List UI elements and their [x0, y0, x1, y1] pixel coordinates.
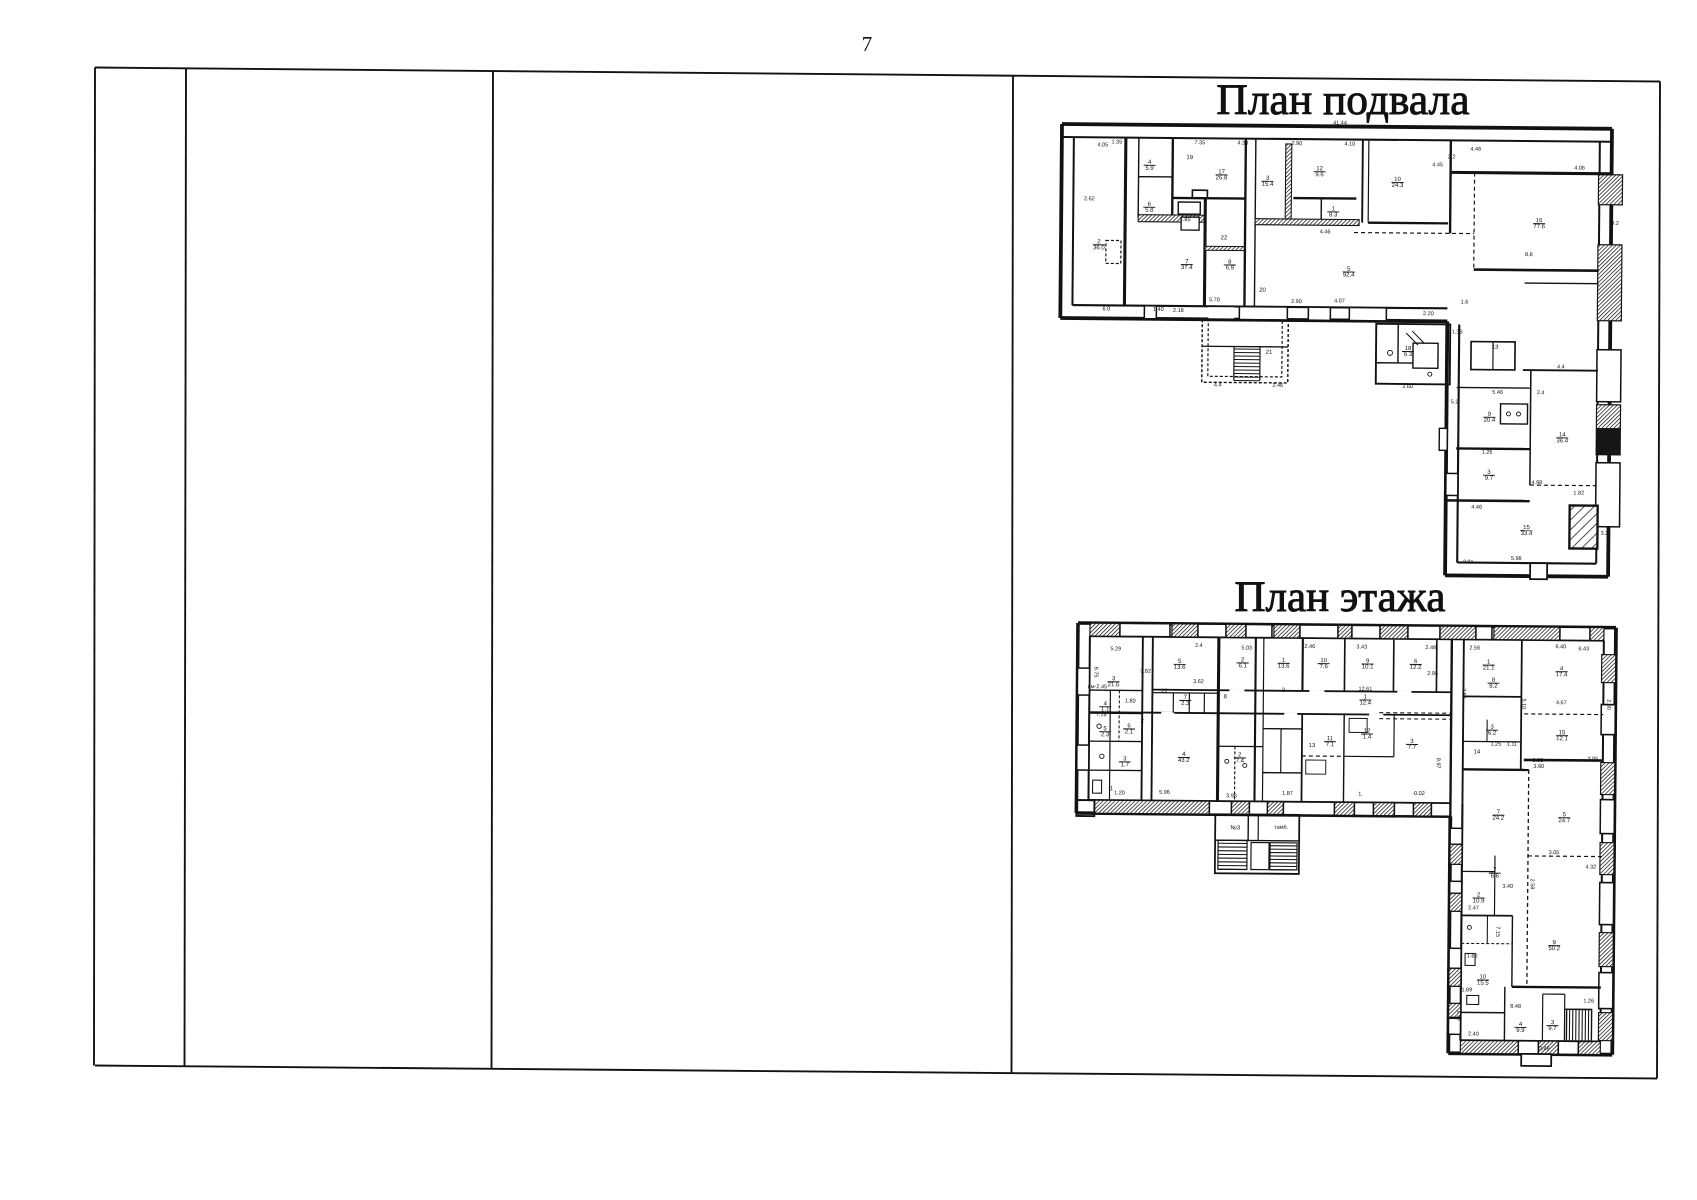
svg-text:36.4: 36.4 — [1556, 438, 1568, 444]
svg-text:92.4: 92.4 — [1343, 272, 1355, 278]
svg-text:2.47: 2.47 — [1468, 905, 1479, 911]
svg-text:8.48: 8.48 — [1510, 1004, 1521, 1010]
svg-text:12.61: 12.61 — [1359, 686, 1373, 692]
svg-text:1.6: 1.6 — [1461, 299, 1469, 305]
svg-text:2.95: 2.95 — [1427, 671, 1438, 677]
svg-text:4.10: 4.10 — [1344, 141, 1355, 147]
svg-text:1.: 1. — [1358, 791, 1363, 797]
svg-text:15.4: 15.4 — [1262, 182, 1274, 188]
svg-text:-0.02: -0.02 — [1412, 791, 1425, 797]
svg-text:1.80: 1.80 — [1125, 698, 1136, 704]
svg-text:12.2: 12.2 — [1410, 665, 1422, 671]
svg-text:4.67: 4.67 — [1556, 700, 1567, 706]
svg-text:6.2: 6.2 — [1488, 731, 1497, 737]
svg-text:13: 13 — [1309, 743, 1316, 749]
svg-text:2.2: 2.2 — [1448, 154, 1456, 160]
svg-text:3.98: 3.98 — [1226, 793, 1237, 799]
svg-text:3.40: 3.40 — [1502, 884, 1513, 890]
svg-text:43.2: 43.2 — [1178, 758, 1190, 764]
svg-text:1.4: 1.4 — [1363, 734, 1372, 740]
svg-text:50.2: 50.2 — [1548, 946, 1560, 952]
svg-text:План этажа: План этажа — [1234, 574, 1445, 621]
svg-text:24.2: 24.2 — [1492, 816, 1504, 822]
svg-text:5.70: 5.70 — [1209, 297, 1220, 303]
svg-text:4.46: 4.46 — [1470, 147, 1481, 153]
svg-text:36.0: 36.0 — [1093, 245, 1105, 251]
svg-text:5.96: 5.96 — [1159, 790, 1170, 796]
svg-text:6.43: 6.43 — [1578, 646, 1589, 652]
svg-text:24.3: 24.3 — [1392, 183, 1404, 189]
svg-text:7.35: 7.35 — [1194, 140, 1205, 146]
svg-text:1.85: 1.85 — [1180, 217, 1191, 223]
svg-text:21.1: 21.1 — [1483, 666, 1495, 672]
svg-text:2.56: 2.56 — [1469, 645, 1480, 651]
svg-text:9.2: 9.2 — [1611, 221, 1619, 227]
svg-text:12.1: 12.1 — [1556, 736, 1568, 742]
svg-text:7.6: 7.6 — [1319, 664, 1328, 670]
svg-text:22: 22 — [1161, 689, 1168, 695]
svg-text:21: 21 — [1266, 350, 1273, 356]
svg-text:1.26: 1.26 — [1583, 998, 1594, 1004]
svg-text:1.60: 1.60 — [1467, 953, 1478, 959]
svg-text:9.7: 9.7 — [1485, 476, 1494, 482]
svg-text:17.4: 17.4 — [1556, 672, 1568, 678]
svg-text:3.48: 3.48 — [1539, 1046, 1550, 1052]
svg-text:4.05: 4.05 — [1097, 142, 1108, 148]
svg-text:6.40: 6.40 — [1555, 644, 1566, 650]
svg-text:6.3: 6.3 — [1404, 352, 1413, 358]
svg-text:5.46: 5.46 — [1492, 390, 1503, 396]
svg-text:2.58: 2.58 — [1529, 879, 1535, 890]
svg-text:1.35: 1.35 — [1111, 139, 1122, 145]
svg-text:1.89: 1.89 — [1461, 987, 1472, 993]
svg-text:5.29: 5.29 — [1110, 646, 1121, 652]
svg-text:4.46: 4.46 — [1471, 505, 1482, 511]
svg-text:15.5: 15.5 — [1477, 980, 1489, 986]
svg-text:2.90: 2.90 — [1291, 299, 1302, 305]
svg-text:1.40: 1.40 — [1153, 307, 1164, 313]
svg-text:4.38: 4.38 — [1237, 141, 1248, 147]
svg-text:2.40: 2.40 — [1468, 1031, 1479, 1037]
svg-text:1.35: 1.35 — [1452, 329, 1463, 335]
svg-text:9.7: 9.7 — [1548, 1026, 1557, 1032]
svg-text:10.9: 10.9 — [1473, 898, 1485, 904]
svg-text:№3: №3 — [1230, 824, 1240, 831]
svg-text:2.18: 2.18 — [1173, 308, 1184, 314]
svg-text:4.45: 4.45 — [1432, 162, 1443, 168]
svg-text:4.98: 4.98 — [1531, 480, 1542, 486]
svg-text:5.98: 5.98 — [1511, 556, 1522, 562]
svg-text:8.3: 8.3 — [1329, 212, 1338, 218]
svg-text:6.6: 6.6 — [1491, 874, 1500, 880]
svg-text:8: 8 — [1224, 694, 1228, 700]
svg-text:2.1: 2.1 — [1125, 729, 1134, 735]
svg-text:4.07: 4.07 — [1334, 298, 1345, 304]
svg-text:6.1: 6.1 — [1238, 663, 1247, 669]
svg-text:3.05: 3.05 — [1549, 850, 1560, 856]
svg-text:5.9: 5.9 — [1145, 166, 1154, 172]
svg-text:7.15: 7.15 — [1494, 926, 1500, 937]
svg-text:13.6: 13.6 — [1174, 665, 1186, 671]
svg-text:3.62: 3.62 — [1193, 679, 1204, 685]
svg-text:2.4: 2.4 — [1195, 643, 1203, 649]
svg-text:6.9: 6.9 — [1226, 265, 1235, 271]
svg-text:1.20: 1.20 — [1114, 790, 1125, 796]
svg-text:2.01: 2.01 — [1463, 560, 1474, 566]
svg-text:19: 19 — [1186, 155, 1193, 161]
svg-text:4.06: 4.06 — [1574, 165, 1585, 171]
svg-text:2.46: 2.46 — [1304, 644, 1315, 650]
svg-text:3.82: 3.82 — [1140, 669, 1151, 675]
svg-text:4.4: 4.4 — [1214, 382, 1222, 388]
svg-text:1.82: 1.82 — [1573, 490, 1584, 496]
svg-text:24.7: 24.7 — [1558, 818, 1570, 824]
svg-text:8.97: 8.97 — [1435, 758, 1441, 769]
svg-text:41.44: 41.44 — [1333, 120, 1347, 126]
svg-text:2.20: 2.20 — [1423, 311, 1434, 317]
svg-text:7: 7 — [862, 32, 873, 56]
svg-text:1.25: 1.25 — [1491, 742, 1502, 748]
svg-text:2.50: 2.50 — [1605, 699, 1611, 710]
svg-text:1.26: 1.26 — [1482, 450, 1493, 456]
svg-text:21.6: 21.6 — [1108, 682, 1120, 688]
svg-text:22: 22 — [1221, 235, 1228, 241]
svg-text:3.2: 3.2 — [1601, 531, 1609, 537]
svg-text:3.05: 3.05 — [1587, 756, 1598, 762]
svg-text:4.32: 4.32 — [1586, 864, 1597, 870]
svg-text:2: 2 — [1140, 719, 1144, 725]
svg-text:5.8: 5.8 — [1145, 208, 1154, 214]
svg-text:7.1: 7.1 — [1326, 742, 1335, 748]
svg-text:8.8: 8.8 — [1525, 252, 1533, 258]
svg-text:7.7: 7.7 — [1408, 745, 1417, 751]
svg-text:5.2: 5.2 — [1451, 399, 1459, 405]
svg-text:2.46: 2.46 — [1272, 383, 1283, 389]
svg-text:1.87: 1.87 — [1282, 791, 1293, 797]
svg-text:13.6: 13.6 — [1278, 664, 1290, 670]
svg-text:2.3: 2.3 — [1101, 732, 1110, 738]
svg-text:9.9: 9.9 — [1516, 1028, 1525, 1034]
svg-text:тамб.: тамб. — [1274, 825, 1288, 831]
svg-text:8.2: 8.2 — [1489, 684, 1498, 690]
svg-text:2.3: 2.3 — [1181, 701, 1190, 707]
svg-text:20.4: 20.4 — [1484, 418, 1496, 424]
svg-text:2.48: 2.48 — [1425, 645, 1436, 651]
svg-text:2.56: 2.56 — [1460, 688, 1466, 699]
svg-text:2.62: 2.62 — [1084, 196, 1095, 202]
svg-text:2.90: 2.90 — [1291, 141, 1302, 147]
svg-text:4.4: 4.4 — [1557, 364, 1565, 370]
svg-text:5.03: 5.03 — [1241, 645, 1252, 651]
svg-text:12.4: 12.4 — [1359, 700, 1371, 706]
svg-text:2.4: 2.4 — [1537, 390, 1545, 396]
svg-text:9.6: 9.6 — [1315, 172, 1324, 178]
svg-text:37.4: 37.4 — [1181, 265, 1193, 271]
svg-text:33.4: 33.4 — [1521, 531, 1533, 537]
svg-text:5.10: 5.10 — [1520, 699, 1526, 710]
svg-text:20: 20 — [1259, 288, 1266, 294]
svg-text:10.1: 10.1 — [1362, 664, 1374, 670]
svg-text:13: 13 — [1492, 345, 1499, 351]
svg-text:2.60: 2.60 — [1402, 384, 1413, 390]
svg-text:3.90: 3.90 — [1533, 764, 1544, 770]
svg-text:7.16: 7.16 — [1096, 712, 1107, 718]
svg-text:1.7: 1.7 — [1121, 762, 1130, 768]
svg-text:6.75: 6.75 — [1093, 667, 1099, 678]
svg-text:1.95: 1.95 — [1456, 1010, 1462, 1021]
svg-text:1.11: 1.11 — [1507, 742, 1517, 748]
svg-text:14: 14 — [1474, 749, 1481, 755]
svg-text:пм-2.45: пм-2.45 — [1088, 684, 1107, 690]
svg-text:3.43: 3.43 — [1356, 644, 1367, 650]
svg-text:4.46: 4.46 — [1320, 229, 1331, 235]
svg-text:7.4: 7.4 — [1236, 758, 1245, 764]
svg-text:77.6: 77.6 — [1533, 224, 1545, 230]
svg-text:6.0: 6.0 — [1103, 306, 1111, 312]
svg-text:26.8: 26.8 — [1216, 175, 1228, 181]
svg-text:План подвала: План подвала — [1216, 76, 1469, 124]
